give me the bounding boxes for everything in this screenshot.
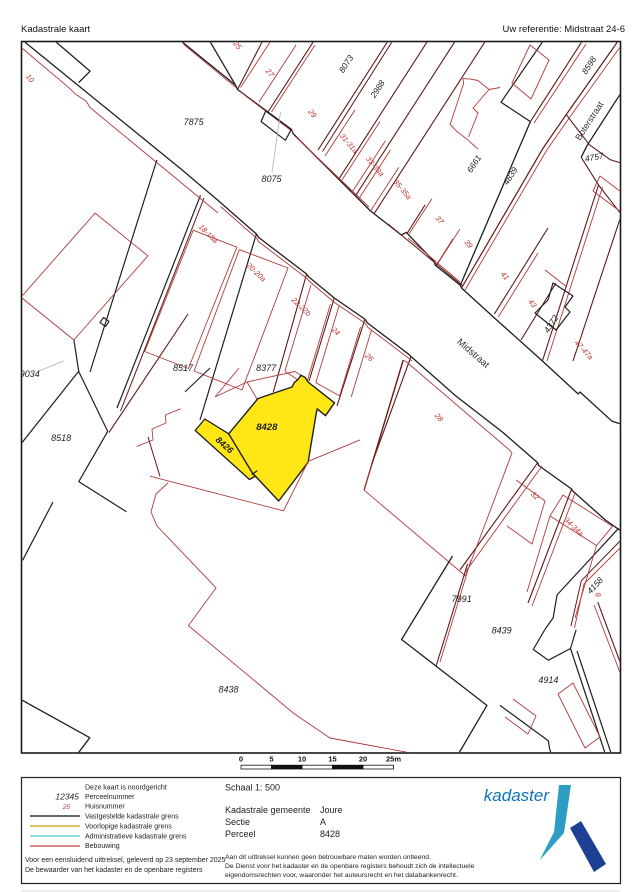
svg-text:eigendomsrechten voor, waarond: eigendomsrechten voor, waaronder het aut… bbox=[225, 872, 458, 879]
svg-text:8428: 8428 bbox=[256, 422, 278, 433]
svg-text:4914: 4914 bbox=[538, 675, 558, 685]
svg-text:12345: 12345 bbox=[55, 792, 79, 802]
svg-text:Deze kaart is noordgericht: Deze kaart is noordgericht bbox=[85, 785, 167, 792]
svg-text:Uw referentie: Midstraat 24-6: Uw referentie: Midstraat 24-6 bbox=[503, 24, 626, 35]
svg-text:A: A bbox=[320, 817, 326, 827]
svg-text:De bewaarder van het kadaster: De bewaarder van het kadaster en de open… bbox=[25, 867, 203, 874]
svg-text:Administratieve kadastrale gre: Administratieve kadastrale grens bbox=[85, 834, 187, 841]
svg-text:kadaster: kadaster bbox=[484, 786, 551, 805]
svg-text:Joure: Joure bbox=[320, 805, 343, 815]
svg-text:10: 10 bbox=[298, 755, 306, 764]
svg-text:Kadastrale gemeente: Kadastrale gemeente bbox=[225, 805, 311, 815]
svg-text:Schaal 1: 500: Schaal 1: 500 bbox=[225, 783, 280, 793]
svg-text:8518: 8518 bbox=[51, 433, 71, 443]
svg-text:9034: 9034 bbox=[20, 369, 40, 379]
svg-text:15: 15 bbox=[328, 755, 336, 764]
svg-text:Bebouwing: Bebouwing bbox=[85, 843, 120, 850]
svg-text:8428: 8428 bbox=[320, 829, 340, 839]
svg-text:8075: 8075 bbox=[261, 174, 282, 184]
svg-text:8438: 8438 bbox=[218, 685, 238, 695]
svg-text:Aan dit uittreksel kunnen geen: Aan dit uittreksel kunnen geen betrouwba… bbox=[225, 854, 431, 861]
svg-text:5: 5 bbox=[269, 755, 273, 764]
svg-text:8517: 8517 bbox=[173, 363, 194, 373]
svg-text:0: 0 bbox=[239, 755, 243, 764]
svg-text:20: 20 bbox=[359, 755, 367, 764]
svg-text:Perceelnummer: Perceelnummer bbox=[85, 794, 135, 801]
svg-text:De Dienst voor het kadaster en: De Dienst voor het kadaster en de openba… bbox=[225, 863, 475, 870]
svg-text:Voorlopige kadastrale grens: Voorlopige kadastrale grens bbox=[85, 824, 172, 831]
svg-text:25m: 25m bbox=[386, 755, 401, 764]
svg-text:8439: 8439 bbox=[492, 626, 512, 636]
svg-text:Huisnummer: Huisnummer bbox=[85, 804, 125, 811]
svg-text:8377: 8377 bbox=[256, 363, 277, 373]
svg-text:Perceel: Perceel bbox=[225, 829, 256, 839]
svg-text:7991: 7991 bbox=[452, 594, 472, 604]
svg-text:7875: 7875 bbox=[184, 117, 205, 127]
svg-text:Sectie: Sectie bbox=[225, 817, 250, 827]
svg-text:25: 25 bbox=[62, 804, 71, 811]
svg-text:Voor een eensluidend uittrekse: Voor een eensluidend uittreksel, gelever… bbox=[25, 857, 226, 864]
svg-text:Kadastrale kaart: Kadastrale kaart bbox=[21, 24, 91, 35]
svg-text:Vastgestelde kadastrale grens: Vastgestelde kadastrale grens bbox=[85, 814, 179, 821]
